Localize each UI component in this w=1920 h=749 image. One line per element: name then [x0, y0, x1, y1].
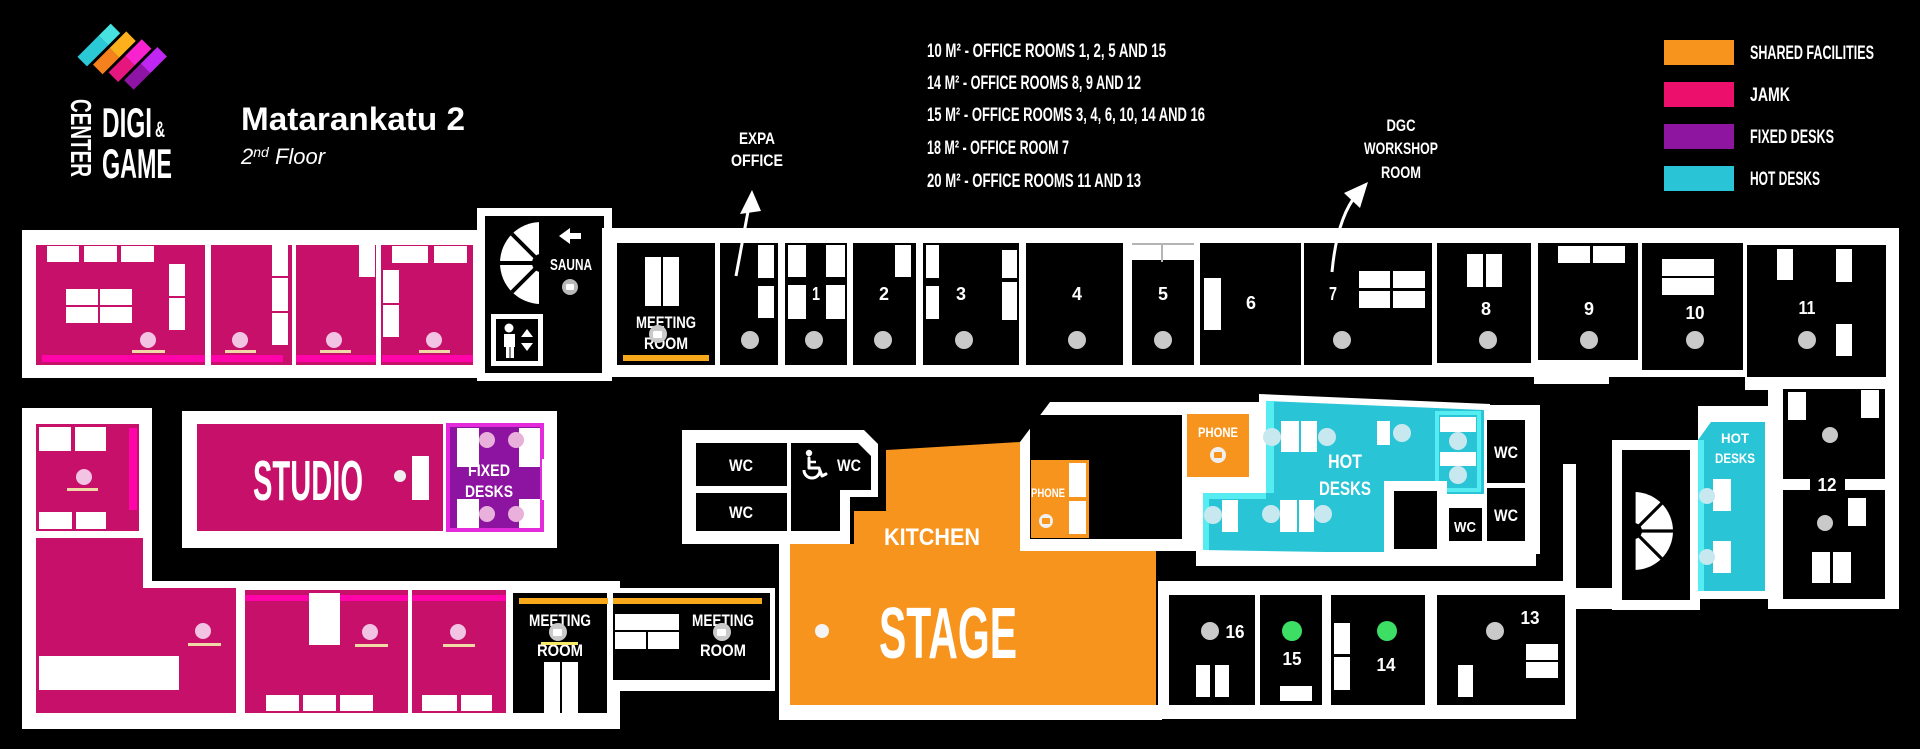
- svg-text:PHONE: PHONE: [1031, 486, 1065, 500]
- svg-text:Matarankatu 2: Matarankatu 2: [241, 101, 465, 137]
- svg-text:HOT: HOT: [1721, 430, 1749, 446]
- svg-text:20 M² - OFFICE ROOMS 11 AND 13: 20 M² - OFFICE ROOMS 11 AND 13: [927, 171, 1141, 192]
- svg-text:HOT DESKS: HOT DESKS: [1750, 169, 1820, 190]
- svg-text:9: 9: [1584, 299, 1594, 319]
- svg-text:FIXED: FIXED: [468, 461, 510, 480]
- svg-text:2nd Floor: 2nd Floor: [240, 144, 327, 169]
- svg-text:7: 7: [1329, 284, 1337, 304]
- svg-text:FIXED DESKS: FIXED DESKS: [1750, 127, 1834, 148]
- svg-text:DGC: DGC: [1387, 116, 1416, 135]
- svg-text:10 M² - OFFICE ROOMS 1, 2, 5 A: 10 M² - OFFICE ROOMS 1, 2, 5 AND 15: [927, 41, 1166, 62]
- svg-text:MEETING: MEETING: [636, 313, 696, 332]
- svg-text:STAGE: STAGE: [879, 594, 1017, 674]
- svg-text:ROOM: ROOM: [700, 641, 746, 660]
- svg-text:14 M² - OFFICE ROOMS 8, 9 AND: 14 M² - OFFICE ROOMS 8, 9 AND 12: [927, 73, 1141, 94]
- svg-text:STUDIO: STUDIO: [253, 449, 363, 513]
- svg-text:KITCHEN: KITCHEN: [884, 524, 980, 551]
- svg-text:WC: WC: [1454, 519, 1476, 536]
- svg-text:11: 11: [1799, 298, 1816, 318]
- svg-text:4: 4: [1072, 284, 1082, 304]
- svg-text:1: 1: [812, 284, 820, 304]
- svg-text:16: 16: [1226, 622, 1245, 642]
- svg-text:15: 15: [1283, 649, 1302, 669]
- svg-text:SAUNA: SAUNA: [550, 257, 592, 274]
- svg-text:14: 14: [1377, 655, 1396, 675]
- svg-text:JAMK: JAMK: [1750, 85, 1790, 106]
- svg-text:DESKS: DESKS: [465, 482, 513, 501]
- svg-text:3: 3: [956, 284, 966, 304]
- svg-text:ROOM: ROOM: [1381, 163, 1421, 182]
- svg-text:DIGI: DIGI: [102, 99, 152, 146]
- svg-text:2: 2: [879, 284, 889, 304]
- svg-text:13: 13: [1521, 608, 1540, 628]
- svg-text:WC: WC: [729, 503, 753, 522]
- svg-text:12: 12: [1818, 475, 1837, 495]
- svg-text:HOT: HOT: [1328, 452, 1362, 473]
- svg-text:WC: WC: [1494, 506, 1518, 525]
- svg-text:10: 10: [1686, 303, 1705, 323]
- svg-text:6: 6: [1246, 293, 1256, 313]
- svg-text:WORKSHOP: WORKSHOP: [1364, 139, 1438, 158]
- svg-text:&: &: [155, 117, 165, 142]
- svg-text:GAME: GAME: [102, 140, 172, 187]
- svg-text:SHARED FACILITIES: SHARED FACILITIES: [1750, 43, 1874, 64]
- svg-text:DESKS: DESKS: [1319, 479, 1371, 500]
- svg-text:5: 5: [1158, 284, 1168, 304]
- svg-text:8: 8: [1481, 299, 1491, 319]
- svg-text:WC: WC: [1494, 443, 1518, 462]
- svg-text:18 M² - OFFICE ROOM 7: 18 M² - OFFICE ROOM 7: [927, 138, 1069, 159]
- svg-text:PHONE: PHONE: [1198, 424, 1238, 440]
- svg-text:EXPA: EXPA: [739, 129, 775, 148]
- svg-text:CENTER: CENTER: [64, 99, 96, 177]
- svg-text:WC: WC: [837, 456, 861, 475]
- svg-text:OFFICE: OFFICE: [731, 151, 783, 170]
- svg-text:WC: WC: [729, 456, 753, 475]
- svg-text:15 M² - OFFICE ROOMS 3, 4, 6,: 15 M² - OFFICE ROOMS 3, 4, 6, 10, 14 AND…: [927, 105, 1205, 126]
- svg-text:DESKS: DESKS: [1715, 450, 1755, 466]
